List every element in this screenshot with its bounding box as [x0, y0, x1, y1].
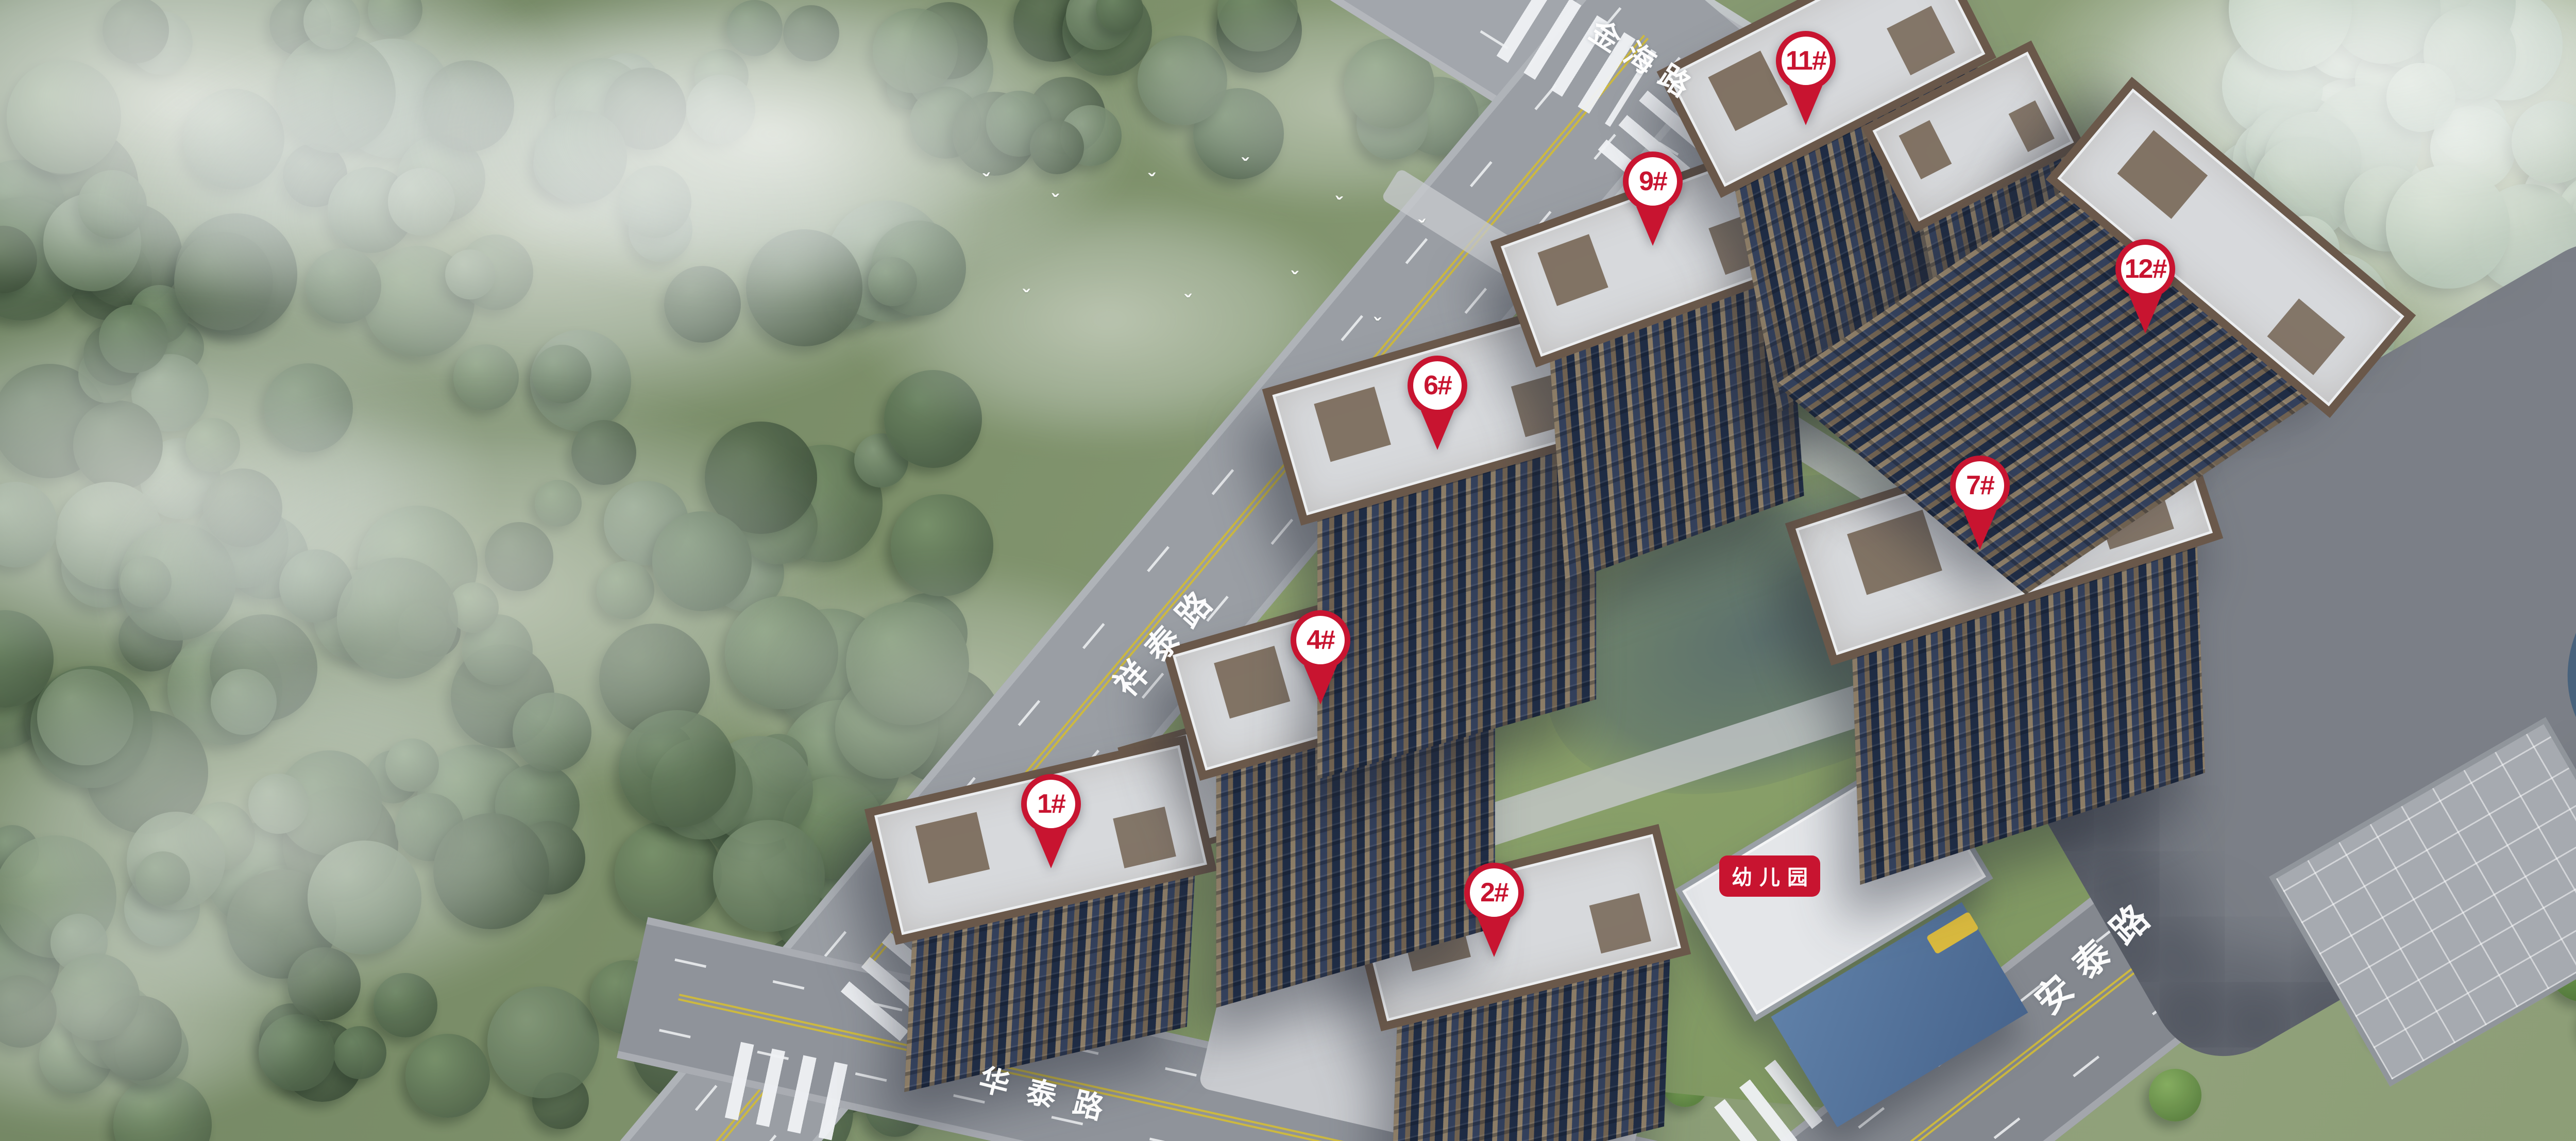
- marker-circle: 11#: [1776, 31, 1836, 91]
- marker-pointer-icon: [1963, 511, 1996, 550]
- marker-pointer-icon: [1421, 411, 1454, 450]
- tree: [487, 986, 599, 1098]
- marker-pointer-icon: [2129, 294, 2162, 333]
- tree: [686, 75, 755, 144]
- tree: [99, 305, 168, 374]
- tree: [783, 5, 839, 61]
- tree: [337, 558, 458, 679]
- tree: [306, 248, 381, 324]
- bird-icon: ˇ: [1290, 268, 1298, 292]
- tree: [619, 165, 691, 238]
- tree: [388, 168, 455, 236]
- tree: [333, 1026, 386, 1079]
- kindergarten-badge: 幼儿园: [1719, 855, 1820, 897]
- tree: [53, 953, 140, 1040]
- marker-label: 12#: [2125, 254, 2166, 284]
- bird-icon: ˇ: [1242, 155, 1248, 178]
- building-marker-9[interactable]: 9#: [1623, 152, 1683, 246]
- building-marker-1[interactable]: 1#: [1021, 774, 1081, 868]
- tree: [211, 669, 277, 735]
- tree: [287, 947, 361, 1020]
- tree: [664, 266, 741, 343]
- tree: [485, 522, 553, 591]
- tree: [78, 170, 147, 239]
- tree: [884, 370, 982, 468]
- marker-pointer-icon: [1636, 207, 1669, 246]
- building-marker-12[interactable]: 12#: [2115, 239, 2175, 333]
- marker-label: 7#: [1966, 470, 1994, 501]
- tree: [571, 420, 636, 485]
- tree: [453, 344, 519, 410]
- marker-label: 1#: [1037, 788, 1065, 819]
- tree: [535, 480, 582, 527]
- tree: [7, 60, 121, 174]
- tree: [308, 841, 421, 954]
- bird-icon: ˇ: [1333, 193, 1343, 216]
- tree: [725, 596, 838, 710]
- tree: [713, 820, 825, 932]
- tree: [259, 1014, 335, 1090]
- tree: [873, 8, 957, 93]
- tree: [433, 813, 549, 929]
- marker-label: 9#: [1639, 166, 1667, 197]
- building-marker-4[interactable]: 4#: [1291, 610, 1350, 704]
- tree: [405, 1034, 489, 1118]
- tree: [445, 249, 495, 299]
- building-marker-2[interactable]: 2#: [1464, 863, 1524, 957]
- tree: [846, 602, 969, 725]
- tree: [1138, 36, 1227, 125]
- tree: [619, 710, 736, 827]
- tree: [2386, 165, 2510, 289]
- tree: [185, 418, 240, 473]
- tree: [248, 774, 309, 834]
- building-marker-11[interactable]: 11#: [1776, 31, 1836, 125]
- marker-circle: 12#: [2115, 239, 2175, 299]
- tree: [135, 851, 190, 906]
- tree: [368, 0, 422, 37]
- marker-label: 4#: [1307, 625, 1334, 656]
- tree: [2512, 100, 2576, 184]
- marker-circle: 2#: [1464, 863, 1524, 922]
- marker-circle: 6#: [1408, 356, 1467, 415]
- tree: [891, 494, 993, 597]
- tree: [532, 345, 591, 404]
- tree: [37, 669, 133, 765]
- tree: [513, 693, 591, 771]
- tree: [385, 739, 438, 792]
- tree: [2386, 63, 2455, 132]
- tree: [374, 973, 437, 1037]
- marker-pointer-icon: [1478, 918, 1511, 957]
- tree: [264, 363, 353, 452]
- bird-icon: ˇ: [1050, 191, 1059, 214]
- tree: [183, 89, 284, 190]
- marker-circle: 1#: [1021, 774, 1081, 834]
- tree: [652, 511, 752, 611]
- tree: [120, 556, 172, 608]
- tree: [174, 232, 273, 330]
- aerial-site-plan: ˇˇˇˇˇˇˇˇˇˇ 金海路 祥泰路 安泰路 华泰路 幼儿园 1# 2# 4# …: [0, 0, 2576, 1141]
- tree: [2149, 1069, 2201, 1121]
- tree: [597, 561, 654, 619]
- building-marker-7[interactable]: 7#: [1950, 456, 2010, 550]
- marker-circle: 9#: [1623, 152, 1683, 211]
- tree: [726, 0, 783, 56]
- marker-pointer-icon: [1789, 86, 1822, 125]
- tree: [1030, 120, 1084, 174]
- tree: [203, 468, 282, 547]
- bird-icon: ˇ: [1148, 170, 1157, 194]
- marker-pointer-icon: [1035, 829, 1067, 868]
- marker-circle: 7#: [1950, 456, 2010, 515]
- tree: [422, 60, 514, 152]
- bird-icon: ˇ: [1023, 286, 1029, 309]
- marker-label: 11#: [1786, 45, 1826, 76]
- tree: [0, 482, 58, 567]
- building-marker-6[interactable]: 6#: [1408, 356, 1467, 450]
- bird-icon: ˇ: [1184, 291, 1192, 315]
- tree: [73, 400, 162, 490]
- marker-pointer-icon: [1304, 665, 1337, 704]
- marker-label: 2#: [1480, 877, 1508, 908]
- marker-circle: 4#: [1291, 610, 1350, 670]
- tree: [103, 0, 169, 63]
- tree: [534, 110, 627, 203]
- marker-label: 6#: [1423, 370, 1451, 401]
- tree: [277, 33, 396, 153]
- tree: [868, 257, 917, 306]
- tree: [746, 229, 862, 346]
